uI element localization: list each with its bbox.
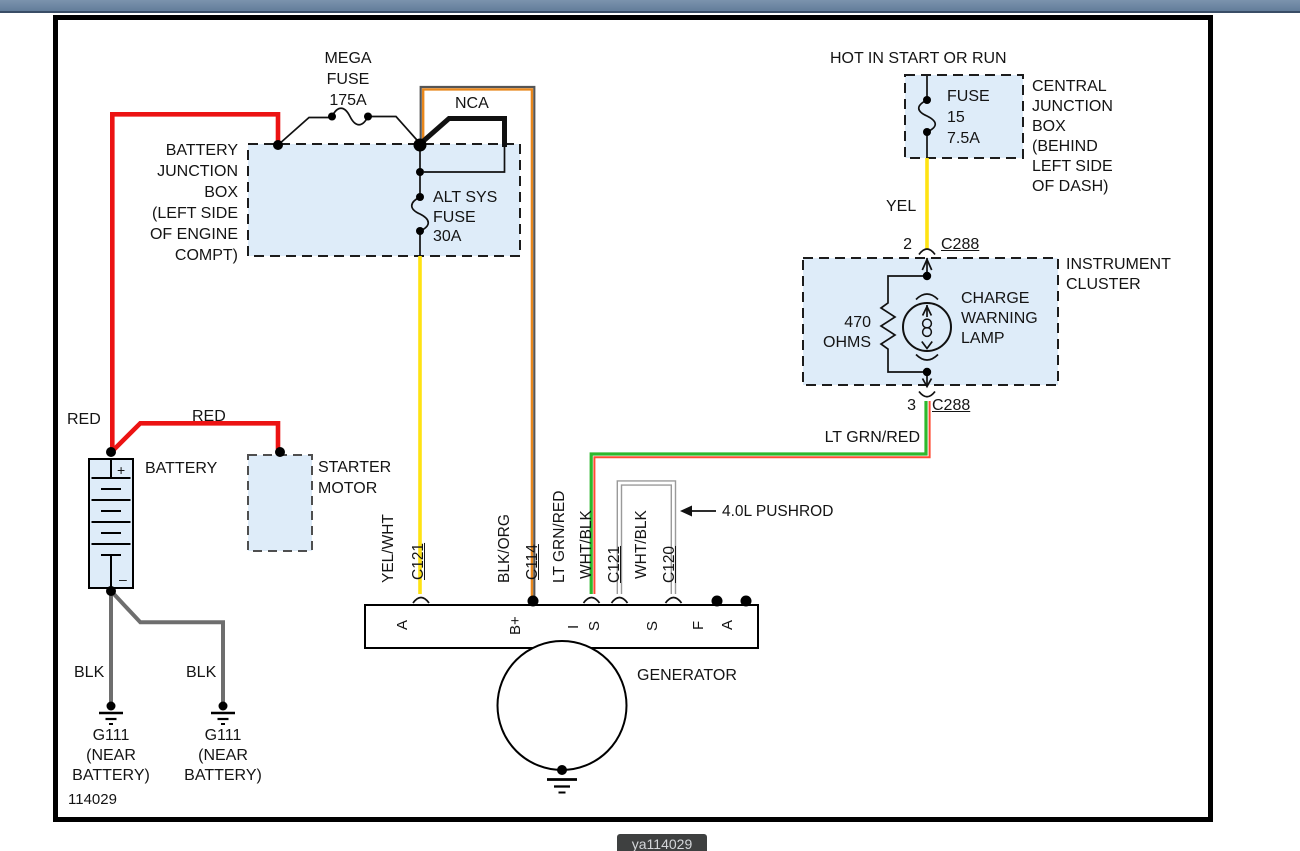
mega-fuse-label: MEGA FUSE 175A [303,48,393,111]
connector-arcs [413,598,682,604]
terminal-s2-label: S [644,621,662,631]
pushrod-note: 4.0L PUSHROD [722,502,833,522]
terminal-a1-label: A [394,620,412,630]
wire-label-lt-grn-red: LT GRN/RED [551,491,569,583]
resistor-470-ohms-label: 470 OHMS [791,313,871,353]
connector-c288-top: C288 [941,235,979,255]
blk-wire-label-1: BLK [74,663,104,683]
instrument-cluster-label: INSTRUMENT CLUSTER [1066,255,1171,294]
generator-label: GENERATOR [637,666,737,686]
alt-sys-fuse-label: ALT SYS FUSE 30A [433,188,497,247]
connector-c288-bottom: C288 [932,396,970,416]
terminal-a2-label: A [719,620,737,630]
ground-g111-label-2: G111 (NEAR BATTERY) [173,726,273,786]
connector-label-c114: C114 [524,544,542,580]
sheet-number: 114029 [68,790,117,810]
wire-label-wht-blk-1: WHT/BLK [578,510,596,579]
battery-label: BATTERY [145,459,217,479]
wire-label-yel-wht: YEL/WHT [380,514,398,583]
blk-wire-label-2: BLK [186,663,216,683]
starter-motor-box [248,455,312,551]
charge-warning-lamp-label: CHARGE WARNING LAMP [961,289,1038,349]
wire-label-wht-blk-2: WHT/BLK [633,510,651,579]
battery-junction-box-label: BATTERY JUNCTION BOX (LEFT SIDE OF ENGIN… [88,140,238,266]
starter-motor-label: STARTER MOTOR [318,457,391,499]
terminal-s1-label: S [586,621,604,631]
hot-in-start-or-run-label: HOT IN START OR RUN [830,49,1007,69]
wiring-diagram-page: MEGA FUSE 175A NCA BATTERY JUNCTION BOX … [0,0,1300,851]
terminal-i-label: I [565,625,583,629]
connector-pin-3: 3 [894,396,916,416]
red-wire-label-left: RED [67,410,101,430]
page-badge: ya114029 [617,834,707,851]
connector-label-c121-b: C121 [606,546,624,583]
battery-minus-sign: – [119,569,127,589]
central-junction-box-label: CENTRAL JUNCTION BOX (BEHIND LEFT SIDE O… [1032,77,1113,197]
wire-label-blk-org: BLK/ORG [496,514,514,583]
cjb-fuse-label: FUSE 15 7.5A [947,86,990,149]
connector-pin-2: 2 [890,235,912,255]
pushrod-arrowhead [680,506,692,517]
blk-wires [111,591,223,703]
ground-g111-label-1: G111 (NEAR BATTERY) [61,726,161,786]
red-wire-label-top: RED [192,407,226,427]
battery-plus-sign: + [117,460,125,480]
terminal-f-label: F [690,621,708,630]
connector-label-c120: C120 [661,546,679,583]
nca-label: NCA [455,94,489,114]
yel-wire-label: YEL [886,197,916,217]
terminal-bplus-label: B+ [507,616,525,635]
lt-grn-red-wire-label: LT GRN/RED [810,428,920,448]
connector-label-c121-a: C121 [410,543,428,580]
